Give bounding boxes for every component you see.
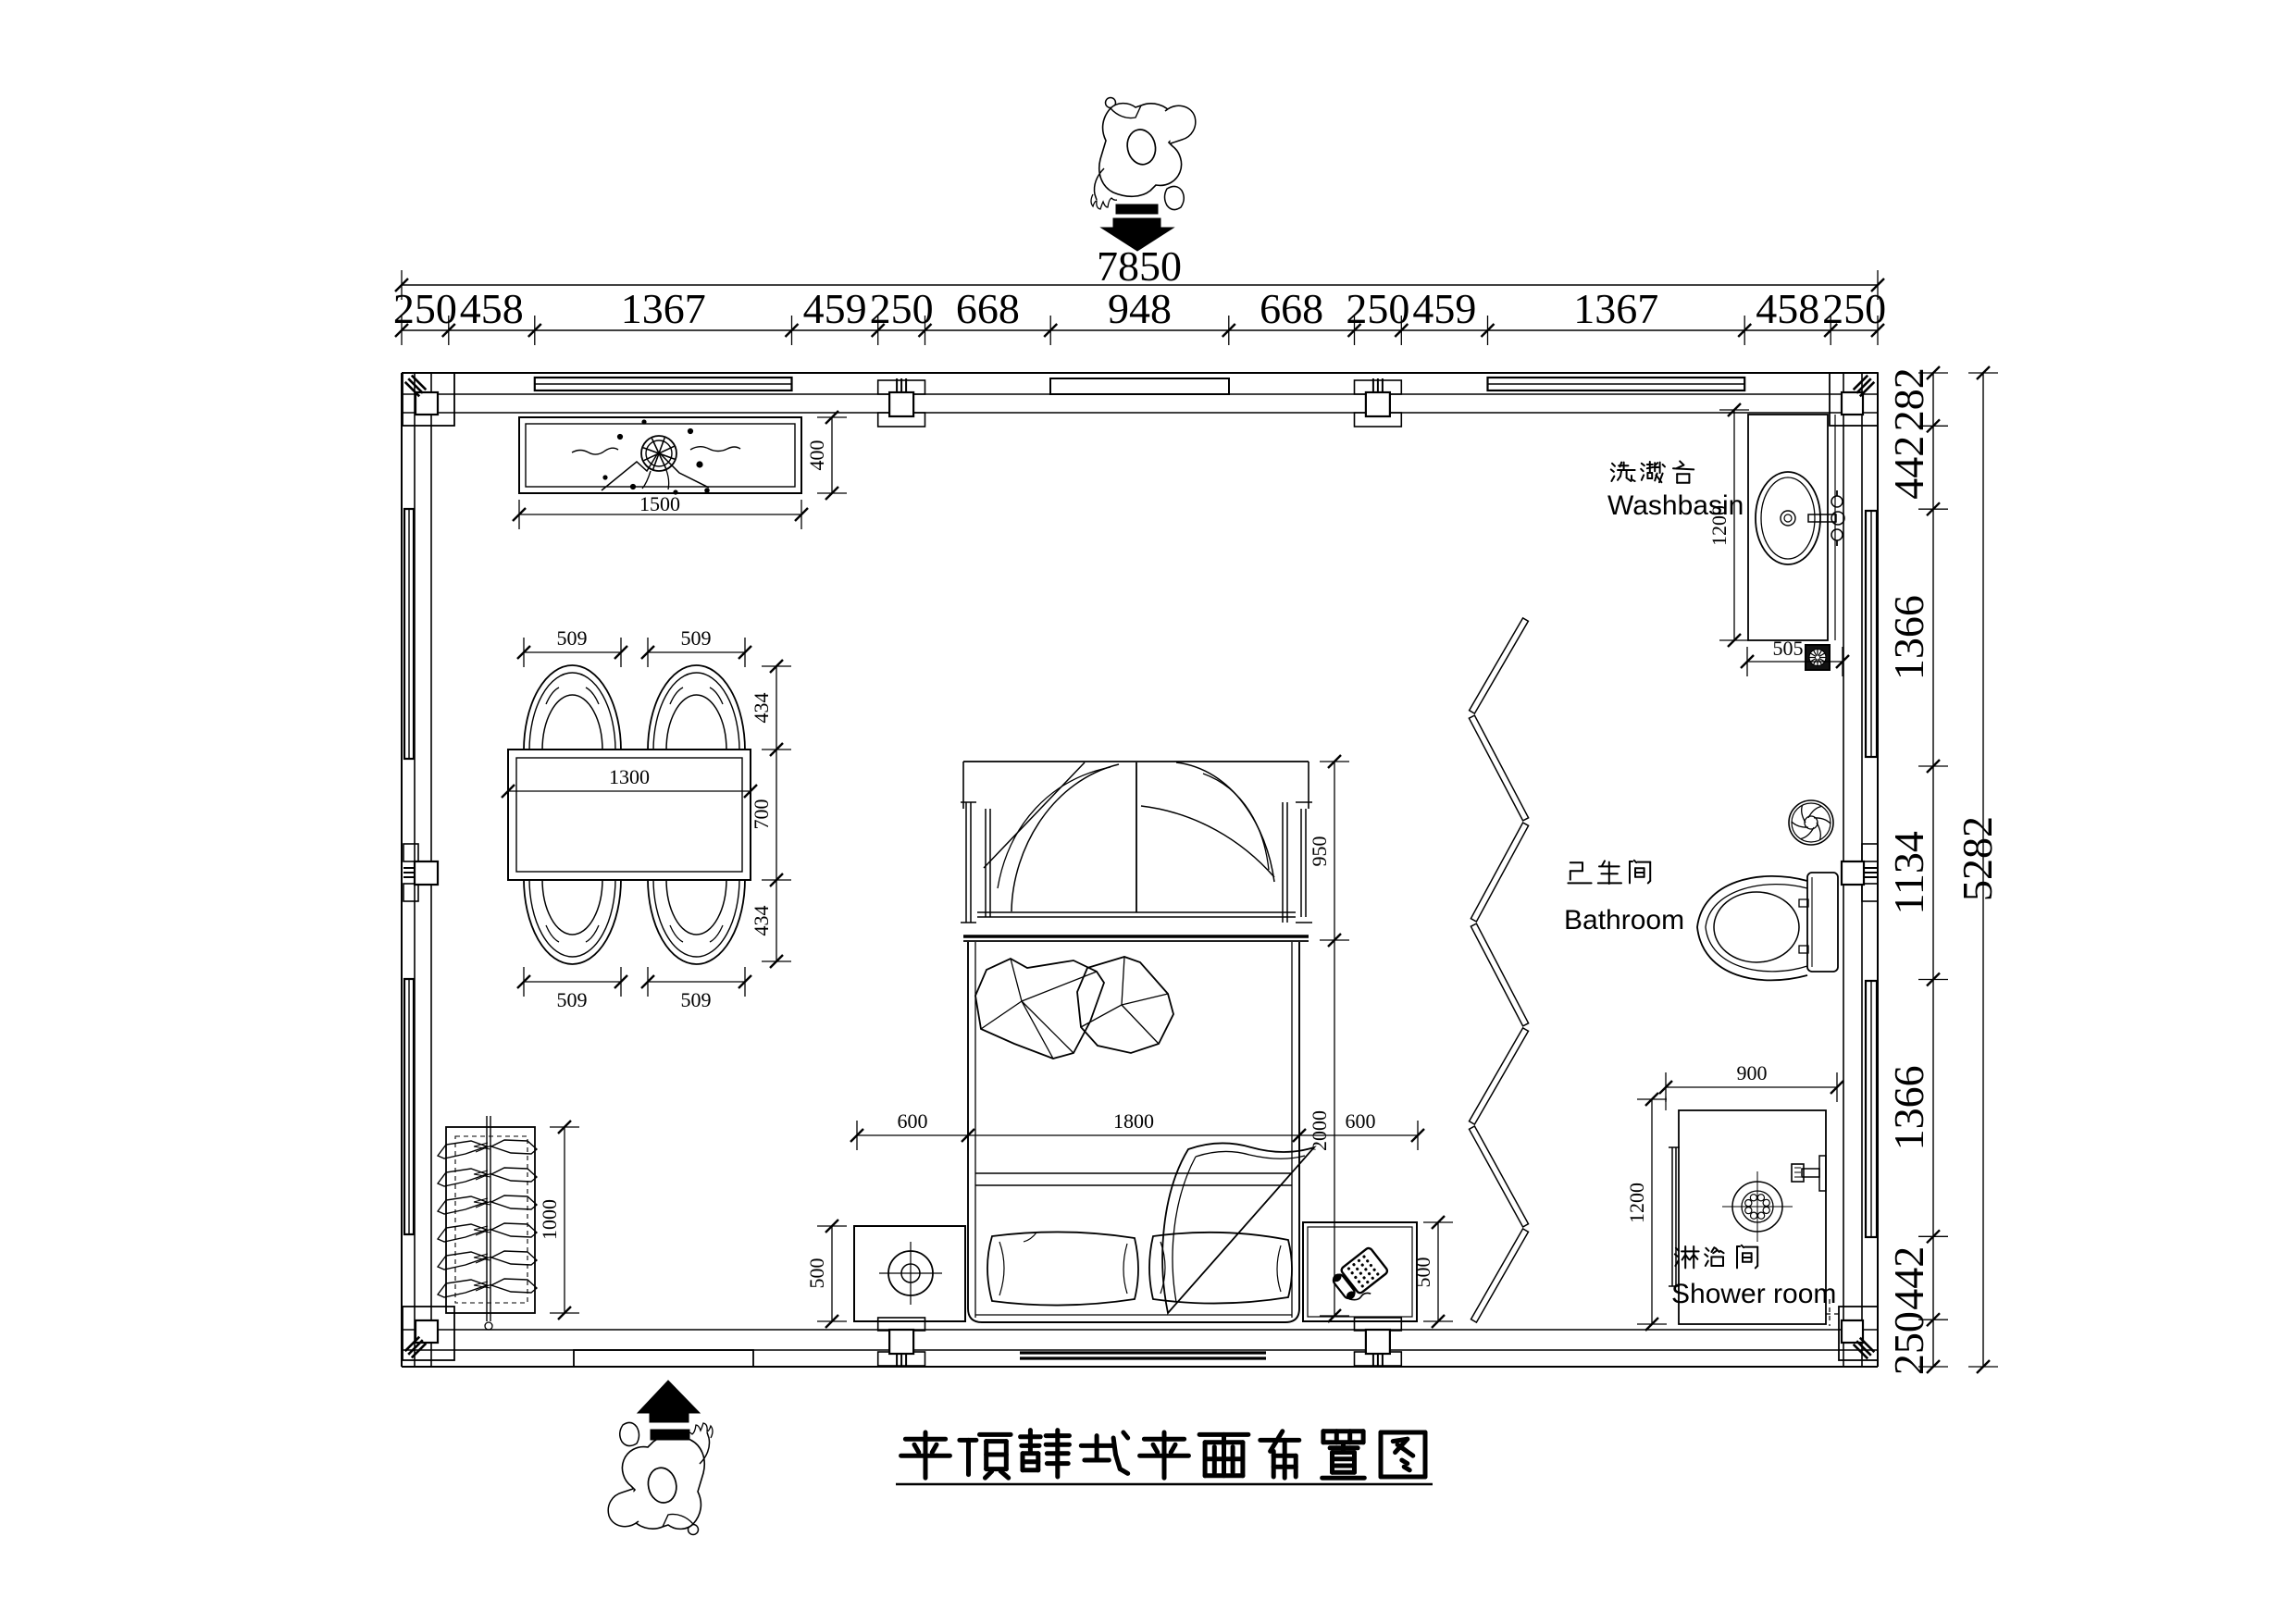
svg-text:1300: 1300 xyxy=(609,765,650,788)
svg-text:250: 250 xyxy=(1822,285,1886,332)
svg-text:668: 668 xyxy=(1260,285,1323,332)
svg-text:459: 459 xyxy=(1412,285,1476,332)
svg-text:900: 900 xyxy=(1737,1061,1768,1084)
svg-text:509: 509 xyxy=(681,988,712,1011)
svg-text:509: 509 xyxy=(681,626,712,650)
svg-text:459: 459 xyxy=(803,285,867,332)
svg-text:509: 509 xyxy=(557,988,588,1011)
svg-text:458: 458 xyxy=(1756,285,1819,332)
svg-text:250: 250 xyxy=(1885,1311,1932,1375)
svg-text:700: 700 xyxy=(750,799,773,830)
svg-text:250: 250 xyxy=(870,285,934,332)
svg-text:500: 500 xyxy=(1411,1258,1434,1288)
svg-text:1366: 1366 xyxy=(1885,595,1932,680)
svg-text:434: 434 xyxy=(750,906,773,936)
svg-text:600: 600 xyxy=(898,1109,928,1133)
svg-text:2000: 2000 xyxy=(1308,1110,1331,1151)
svg-text:442: 442 xyxy=(1885,436,1932,500)
svg-text:1134: 1134 xyxy=(1885,831,1932,914)
svg-text:950: 950 xyxy=(1308,836,1331,867)
svg-text:Bathroom: Bathroom xyxy=(1564,905,1684,935)
svg-text:1367: 1367 xyxy=(1573,285,1658,332)
svg-text:1367: 1367 xyxy=(621,285,706,332)
svg-text:434: 434 xyxy=(750,693,773,724)
svg-text:400: 400 xyxy=(805,440,828,471)
svg-text:1800: 1800 xyxy=(1113,1109,1154,1133)
svg-text:948: 948 xyxy=(1108,285,1172,332)
svg-text:505: 505 xyxy=(1773,637,1804,660)
svg-text:509: 509 xyxy=(557,626,588,650)
svg-text:5282: 5282 xyxy=(1954,816,2001,901)
svg-text:442: 442 xyxy=(1885,1246,1932,1310)
svg-text:668: 668 xyxy=(956,285,1020,332)
svg-text:250: 250 xyxy=(393,285,457,332)
svg-text:1200: 1200 xyxy=(1625,1183,1648,1223)
svg-text:458: 458 xyxy=(460,285,524,332)
svg-text:1366: 1366 xyxy=(1885,1065,1932,1150)
svg-text:600: 600 xyxy=(1346,1109,1376,1133)
svg-text:282: 282 xyxy=(1885,367,1932,431)
svg-text:1500: 1500 xyxy=(639,492,680,515)
svg-text:1000: 1000 xyxy=(538,1199,561,1240)
svg-text:500: 500 xyxy=(805,1258,828,1289)
svg-text:250: 250 xyxy=(1346,285,1409,332)
svg-text:Washbasin: Washbasin xyxy=(1607,490,1744,521)
svg-text:Shower room: Shower room xyxy=(1671,1279,1836,1309)
